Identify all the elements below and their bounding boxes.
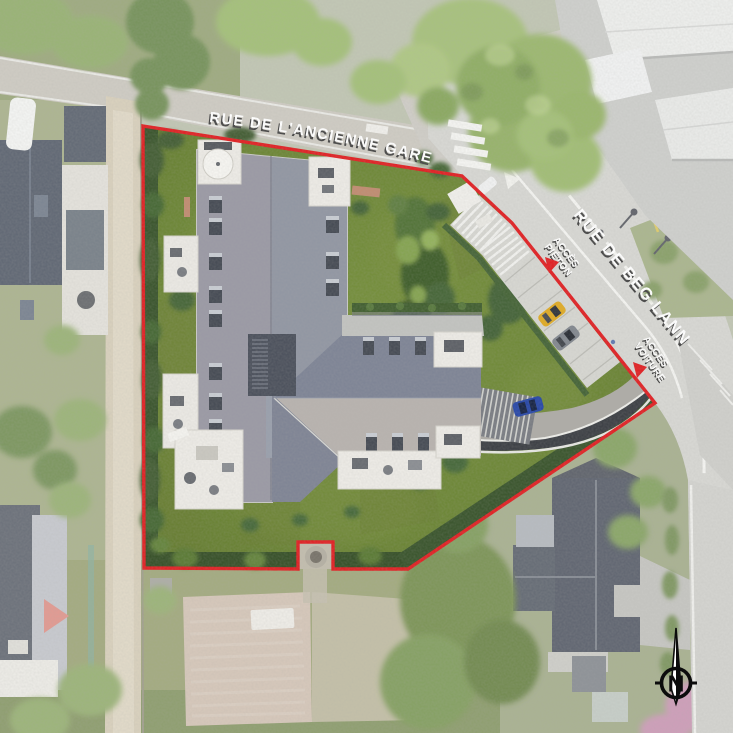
svg-text:N: N	[668, 671, 685, 697]
